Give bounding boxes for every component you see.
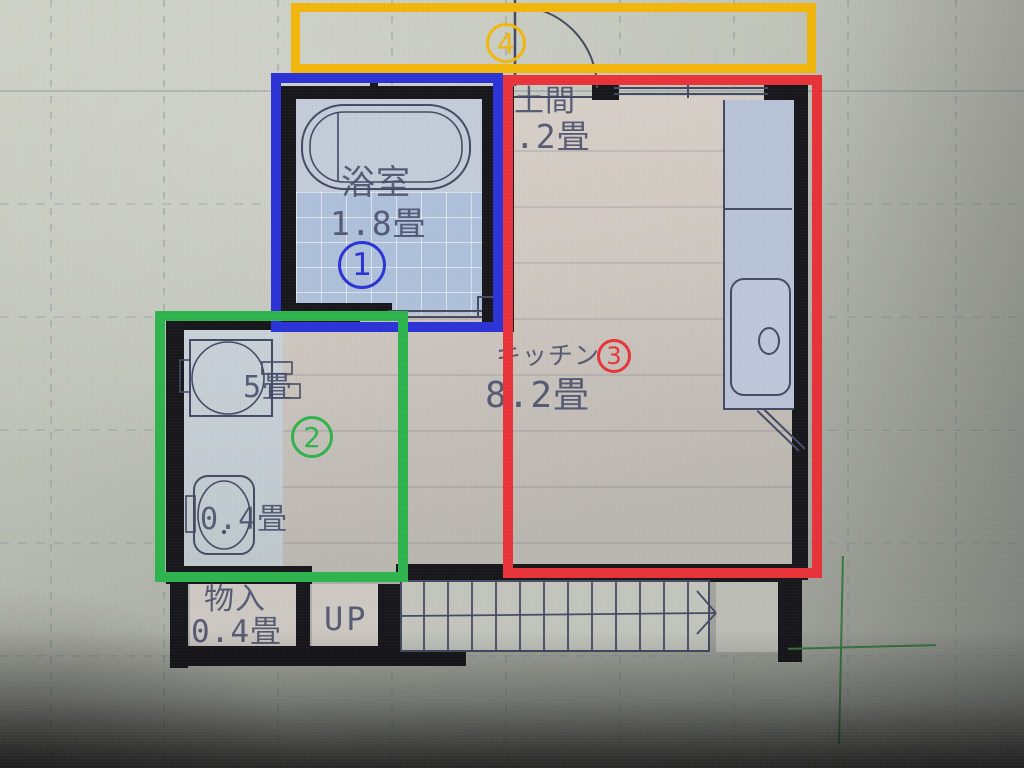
- annotation-number-4: 4: [486, 23, 526, 63]
- stairs-drawing: [400, 580, 724, 654]
- annotation-number-3: 3: [597, 339, 631, 373]
- grid-line-vertical: [955, 0, 957, 768]
- annotation-number-2: 2: [291, 416, 333, 458]
- wall-segment: [378, 584, 400, 650]
- stairs-up-label: UP: [324, 600, 369, 638]
- grid-line-vertical: [847, 0, 849, 768]
- grid-line-horizontal: [0, 655, 1024, 657]
- axis-crosshair-horizontal: [788, 644, 936, 650]
- wall-segment: [296, 584, 310, 650]
- annotation-box-2: [155, 311, 408, 582]
- storage-area-label: 0.4畳: [191, 606, 282, 651]
- photo-of-screen-floor-plan: 浴室 1.8畳 土間 1.2畳 キッチン 8.2畳 5畳 0.4畳 物入 0.4…: [0, 0, 1024, 768]
- floor-strip: [716, 582, 780, 652]
- annotation-box-1: [271, 73, 503, 332]
- annotation-box-4: [291, 3, 816, 73]
- annotation-number-1: 1: [338, 241, 386, 289]
- axis-crosshair-vertical: [838, 556, 844, 744]
- annotation-box-3: [503, 75, 822, 578]
- grid-line-vertical: [50, 0, 52, 768]
